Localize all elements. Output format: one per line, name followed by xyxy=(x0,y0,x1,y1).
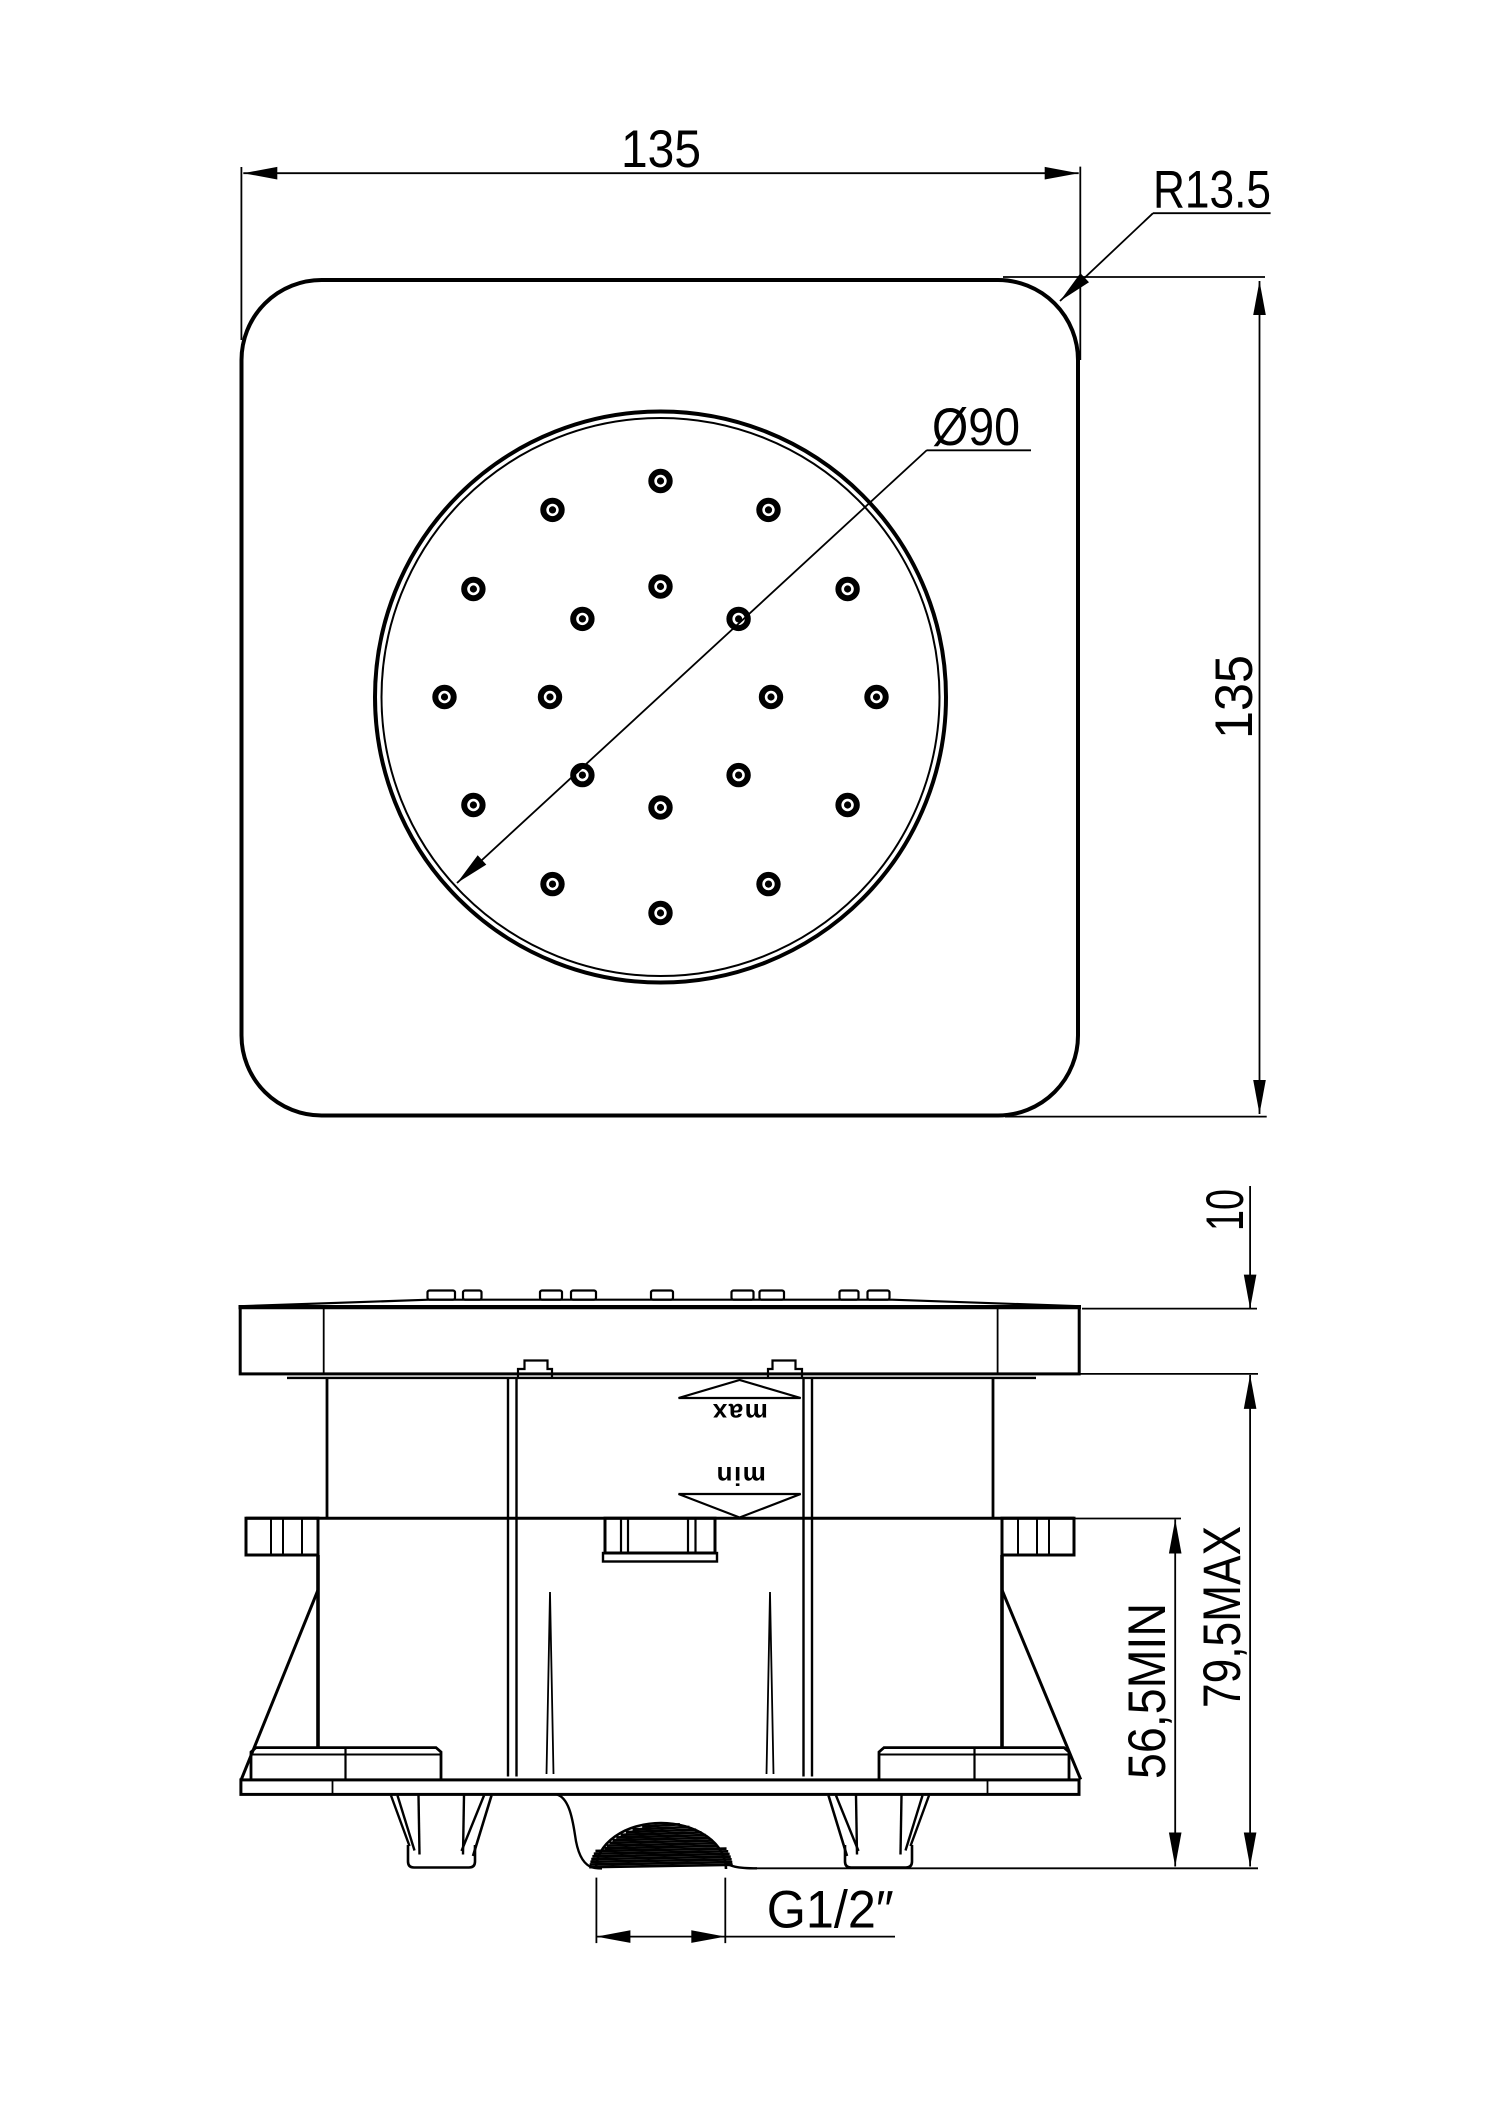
svg-text:min: min xyxy=(715,1461,766,1491)
svg-text:10: 10 xyxy=(1196,1189,1255,1231)
svg-text:R13.5: R13.5 xyxy=(1153,161,1271,220)
svg-text:135: 135 xyxy=(1205,655,1264,739)
svg-text:G1/2″: G1/2″ xyxy=(767,1881,894,1940)
svg-text:Ø90: Ø90 xyxy=(932,398,1020,457)
svg-text:79,5MAX: 79,5MAX xyxy=(1193,1526,1252,1708)
svg-text:135: 135 xyxy=(621,120,701,179)
svg-text:max: max xyxy=(711,1398,768,1428)
svg-text:56,5MIN: 56,5MIN xyxy=(1118,1603,1177,1779)
